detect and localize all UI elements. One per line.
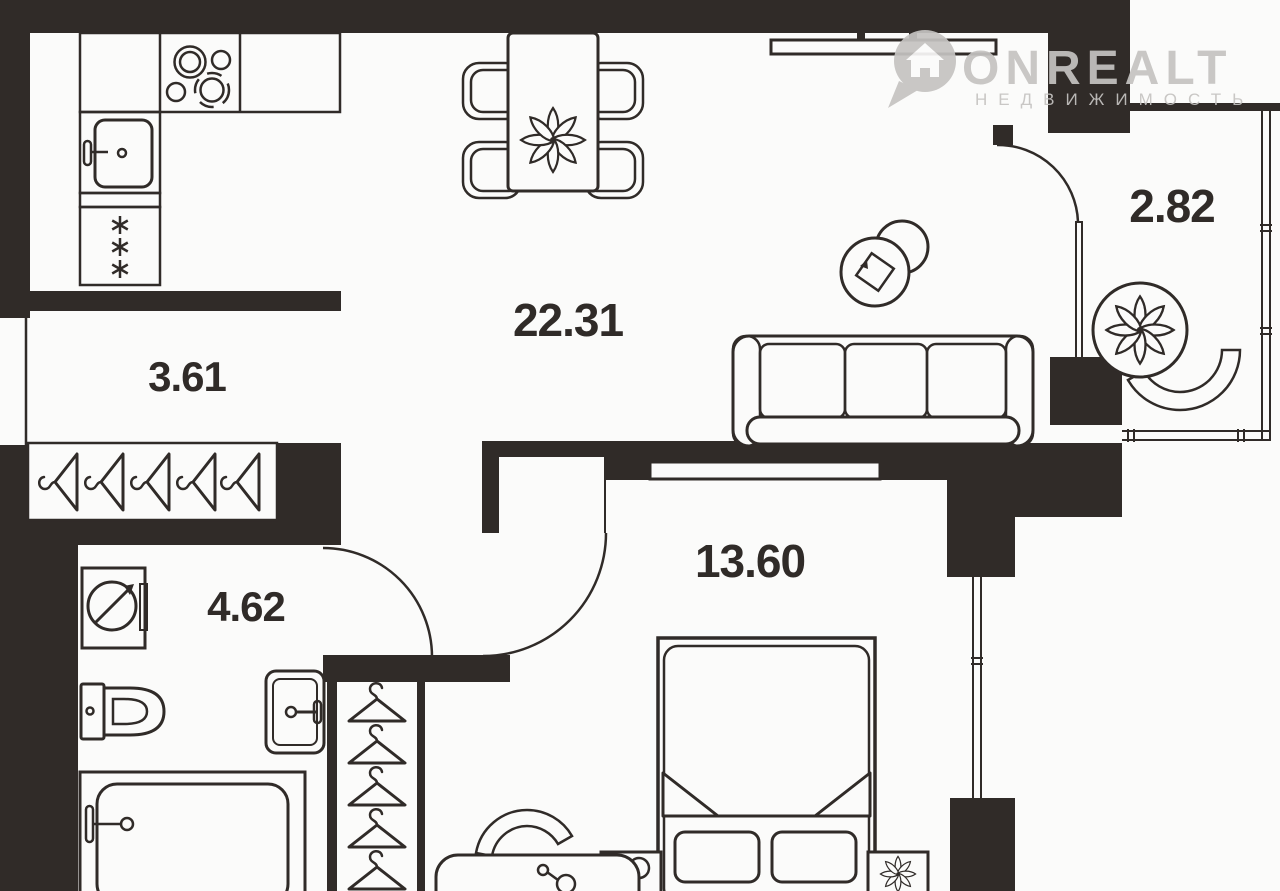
bedroom-door-arc <box>483 533 606 656</box>
floor-plan-svg: 22.31 3.61 4.62 13.60 2.82 ONREALT НЕДВИ… <box>0 0 1280 891</box>
balcony-door-arc <box>997 145 1078 222</box>
bedroom-door-niche <box>498 456 605 533</box>
nightstand-right-icon <box>868 852 928 891</box>
stove-icon <box>167 47 230 108</box>
bedroom-shelf <box>650 462 880 479</box>
watermark-subtitle: НЕДВИЖИМОСТЬ <box>975 90 1254 109</box>
sofa-icon <box>733 336 1033 446</box>
room-living-kitchen-label: 22.31 <box>513 294 624 346</box>
room-bathroom-label: 4.62 <box>207 583 285 630</box>
watermark-title: ONREALT <box>962 42 1232 95</box>
balcony-window-bottom <box>1122 429 1271 442</box>
closet-hangers-icon <box>349 683 405 889</box>
desk-chair-icon <box>476 810 572 856</box>
walls <box>0 0 1280 891</box>
balcony-table-icon <box>1093 283 1187 377</box>
wardrobe-hangers-icon <box>28 443 277 520</box>
toilet-icon <box>81 684 164 739</box>
entrance-doorway <box>0 318 26 445</box>
washing-machine-icon <box>82 568 147 648</box>
bed-icon <box>658 638 875 891</box>
room-balcony-label: 2.82 <box>1129 180 1215 232</box>
balcony-partition <box>1076 222 1082 362</box>
floor-plan: 22.31 3.61 4.62 13.60 2.82 ONREALT НЕДВИ… <box>0 0 1280 891</box>
room-hallway-label: 3.61 <box>148 353 226 400</box>
watermark-logo: ONREALT НЕДВИЖИМОСТЬ <box>888 30 1254 109</box>
bathroom-sink-icon <box>266 671 324 753</box>
floor-lamp-icon <box>841 221 928 306</box>
room-bedroom-label: 13.60 <box>695 535 805 587</box>
desk-icon <box>436 855 639 891</box>
kitchen-sink-icon <box>84 120 152 187</box>
fridge-icon <box>112 216 128 278</box>
bathtub-icon <box>80 772 305 891</box>
balcony-window-right <box>1260 108 1272 441</box>
bedroom-window <box>971 577 983 798</box>
bathroom-door-arc <box>323 548 432 657</box>
dining-table-icon <box>508 33 598 191</box>
